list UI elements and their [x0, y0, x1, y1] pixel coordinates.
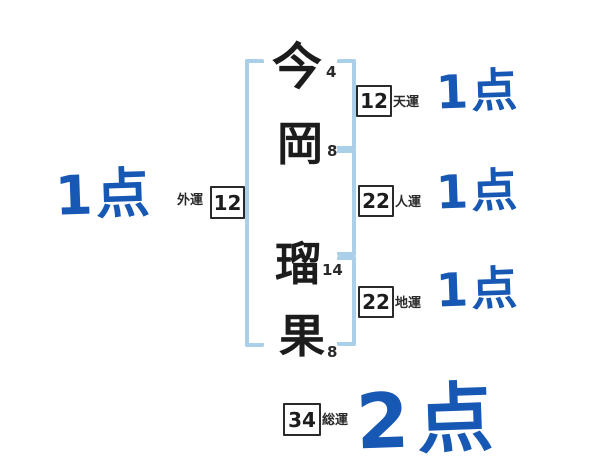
score-person: 1点	[435, 167, 521, 216]
fortune-box-earth: 22	[358, 286, 394, 318]
bracket-full-name	[245, 59, 264, 347]
fortune-box-total: 34	[283, 403, 321, 436]
fortune-value-person: 22	[362, 191, 390, 211]
name-char-3: 瑠	[275, 241, 321, 287]
name-char-1: 今	[272, 42, 322, 92]
fortune-label-earth: 地運	[395, 297, 421, 310]
stroke-count-3: 14	[322, 263, 343, 278]
fortune-label-heaven: 天運	[393, 96, 419, 109]
bracket-person	[337, 149, 356, 256]
fortune-label-outer: 外運	[177, 194, 203, 207]
score-total: 2点	[355, 379, 502, 460]
name-char-4: 果	[279, 313, 325, 359]
bracket-heaven	[337, 59, 356, 150]
fortune-label-person: 人運	[395, 196, 421, 209]
stroke-count-1: 4	[326, 65, 336, 80]
fortune-value-earth: 22	[362, 292, 390, 312]
fortune-box-heaven: 12	[356, 85, 392, 117]
score-outer: 1点	[54, 166, 153, 223]
fortune-label-total: 総運	[322, 414, 348, 427]
fortune-value-heaven: 12	[360, 91, 388, 111]
score-earth: 1点	[435, 265, 521, 314]
name-fortune-diagram: 今 4 岡 8 瑠 14 果 8 外運 12 1点 12 天運 1点 22 人運…	[0, 0, 600, 470]
name-char-2: 岡	[277, 121, 323, 167]
fortune-value-outer: 12	[214, 193, 242, 213]
fortune-box-outer: 12	[210, 186, 245, 219]
fortune-box-person: 22	[358, 185, 394, 217]
score-heaven: 1点	[435, 67, 521, 116]
fortune-value-total: 34	[288, 410, 316, 430]
stroke-count-4: 8	[327, 345, 337, 360]
stroke-count-2: 8	[327, 144, 337, 159]
